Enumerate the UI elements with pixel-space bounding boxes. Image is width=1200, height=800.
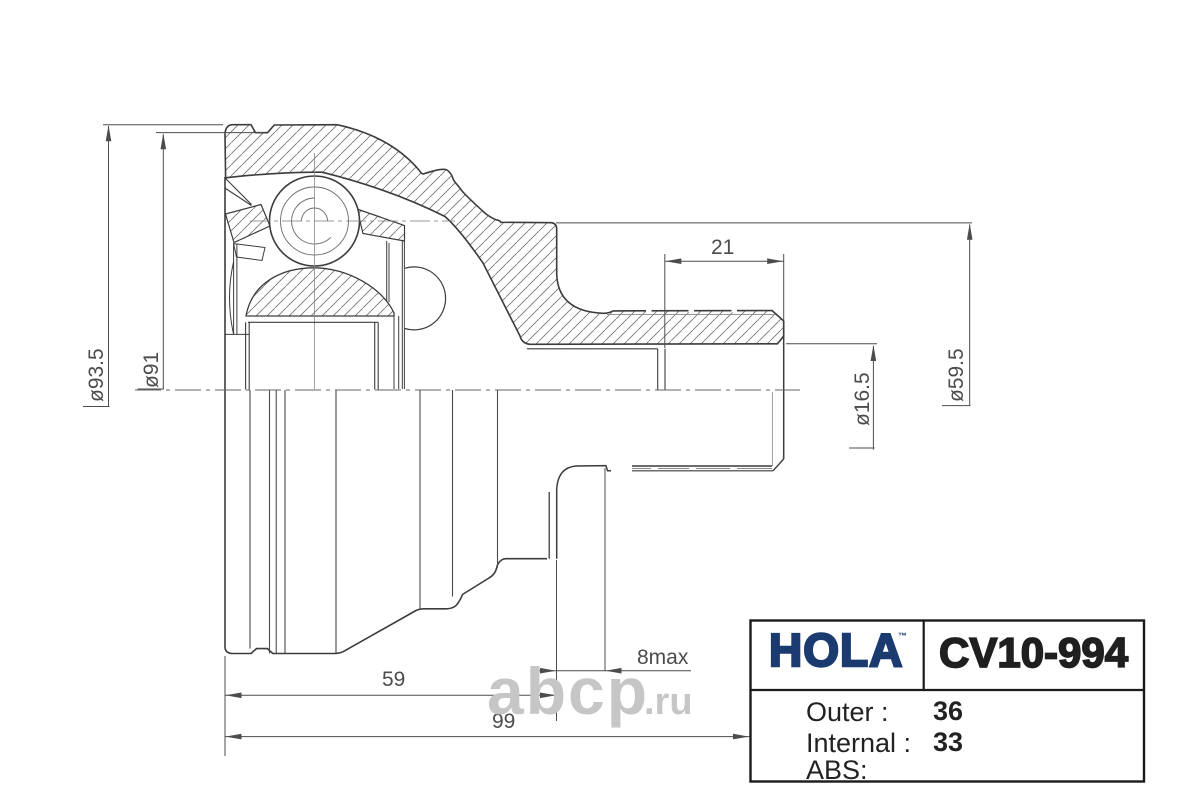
svg-text:ABS:: ABS: <box>806 755 868 785</box>
svg-text:abcp: abcp <box>487 654 649 728</box>
svg-text:Outer :: Outer : <box>806 697 889 727</box>
svg-text:™: ™ <box>898 631 907 641</box>
svg-text:33: 33 <box>933 727 963 757</box>
svg-text:59: 59 <box>382 668 405 691</box>
svg-text:HOLA: HOLA <box>769 624 903 676</box>
svg-text:21: 21 <box>711 236 734 259</box>
svg-text:Internal :: Internal : <box>806 728 911 758</box>
svg-text:.ru: .ru <box>644 681 693 723</box>
svg-text:ø91: ø91 <box>140 352 163 388</box>
svg-text:ø16.5: ø16.5 <box>851 372 874 426</box>
svg-text:ø93.5: ø93.5 <box>85 348 108 402</box>
svg-text:ø59.5: ø59.5 <box>945 348 968 402</box>
svg-text:36: 36 <box>933 696 963 726</box>
svg-text:CV10-994: CV10-994 <box>939 629 1129 676</box>
